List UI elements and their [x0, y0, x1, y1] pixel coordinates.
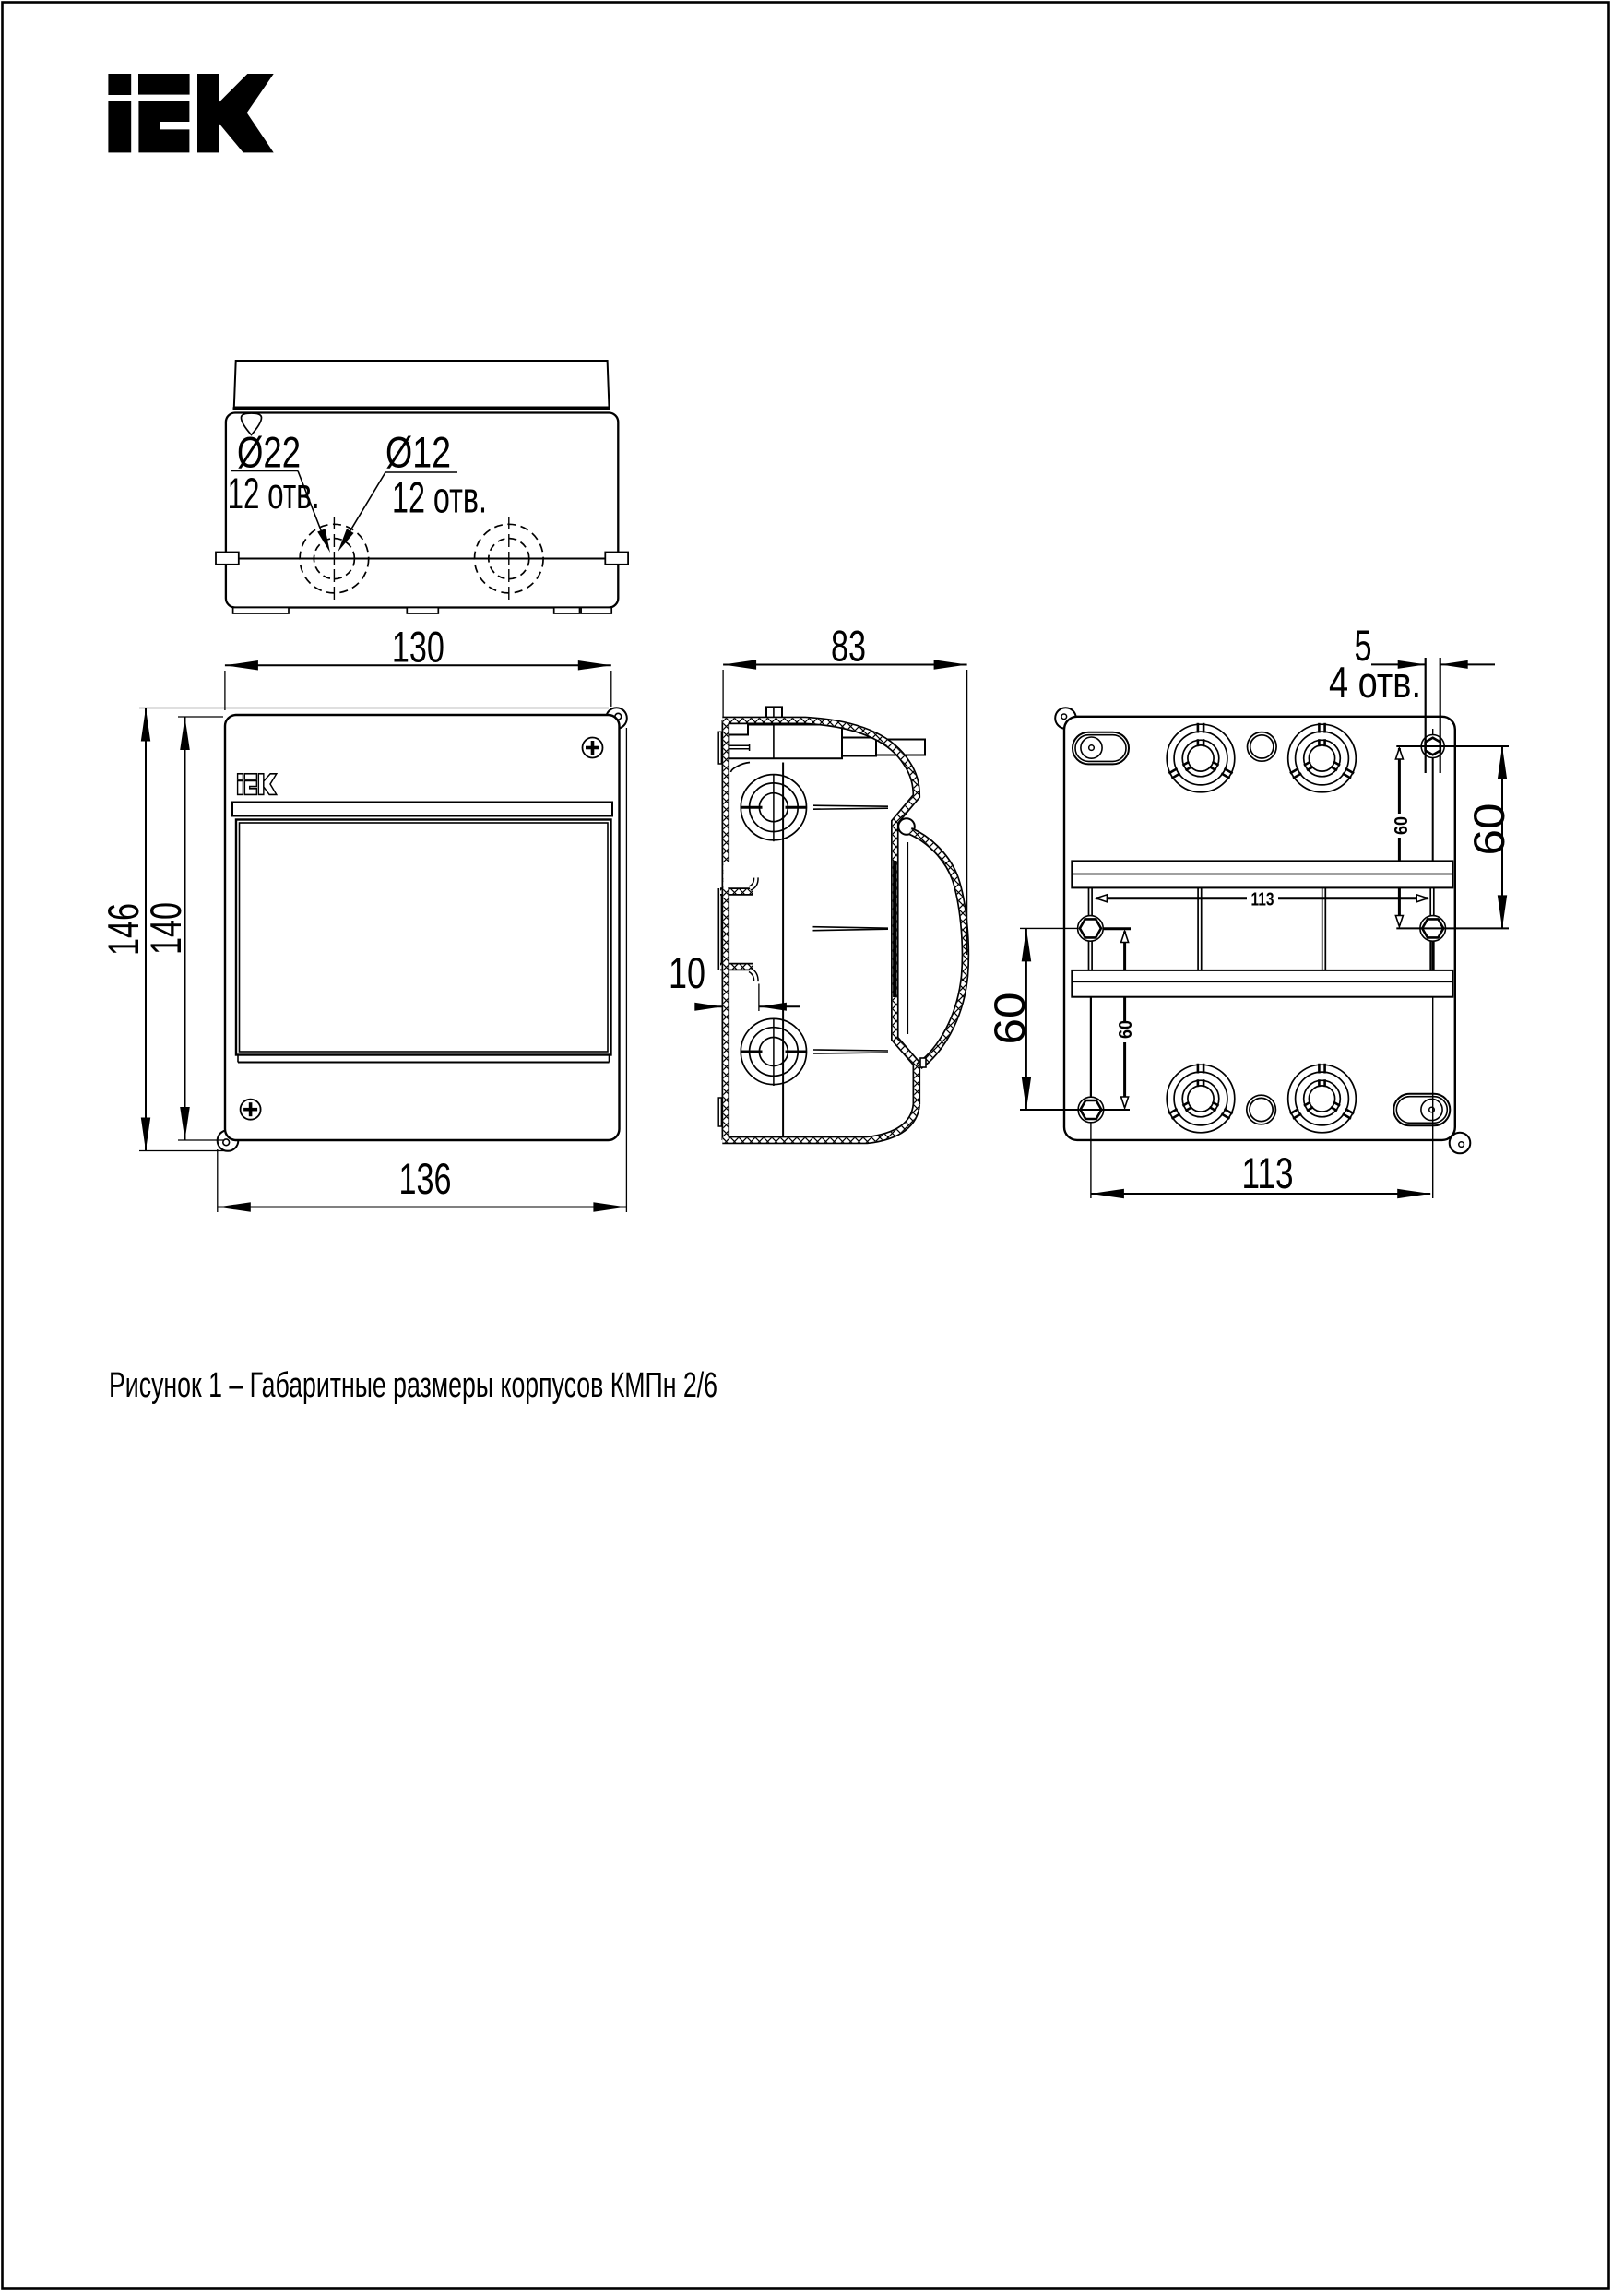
svg-text:60: 60 [985, 993, 1034, 1045]
svg-text:136: 136 [399, 1154, 452, 1203]
svg-text:113: 113 [1251, 890, 1274, 910]
svg-text:60: 60 [1464, 803, 1513, 856]
svg-text:4 отв.: 4 отв. [1329, 658, 1421, 707]
svg-text:12 отв.: 12 отв. [392, 473, 487, 522]
svg-text:60: 60 [1392, 816, 1412, 835]
svg-text:10: 10 [669, 948, 705, 997]
svg-text:83: 83 [831, 622, 866, 671]
svg-text:Ø12: Ø12 [385, 428, 451, 477]
svg-text:60: 60 [1116, 1020, 1136, 1039]
svg-text:130: 130 [392, 623, 444, 672]
svg-text:113: 113 [1242, 1148, 1294, 1197]
svg-text:Рисунок 1 – Габаритные размеры: Рисунок 1 – Габаритные размеры корпусов … [109, 1366, 717, 1405]
svg-text:140: 140 [141, 902, 190, 955]
